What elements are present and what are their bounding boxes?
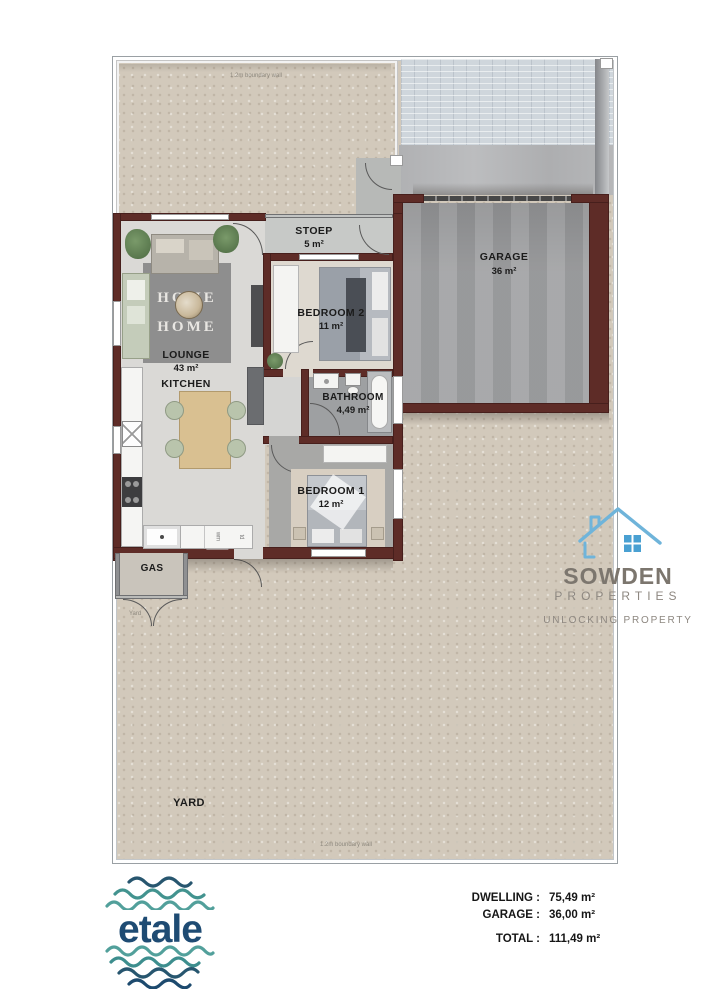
- kitchen-stove: [122, 477, 142, 507]
- garage-area: 36 m²: [492, 266, 517, 278]
- garage-wall-top-left: [393, 194, 424, 203]
- gas-label: GAS: [141, 563, 164, 576]
- etale-logo: etale: [96, 874, 224, 994]
- rug-text-line2: HOME: [157, 320, 217, 335]
- tumble-dryer: td: [230, 526, 252, 548]
- house-bottom-shadow: [188, 559, 393, 573]
- gas-wall-left: [115, 553, 120, 599]
- bedroom1-wardrobe: [323, 445, 387, 463]
- bathroom-area: 4,49 m²: [337, 405, 370, 417]
- yard-label: YARD: [173, 797, 205, 811]
- oven-unit: [144, 526, 181, 548]
- gas-door-arc-right: [153, 599, 182, 626]
- bedroom2-label: BEDROOM 2: [297, 307, 364, 320]
- sowden-subtitle: PROPERTIES: [538, 589, 698, 603]
- bathroom-window-right: [393, 376, 403, 424]
- stoep-wall-top: [265, 214, 393, 218]
- sowden-name: SOWDEN: [538, 564, 698, 588]
- total-value: 111,49 m²: [549, 933, 600, 945]
- sofa-left: [122, 273, 150, 359]
- stoep-label: STOEP: [295, 225, 332, 238]
- kitchen-sink: [122, 421, 142, 447]
- dwelling-label: DWELLING :: [415, 892, 540, 904]
- dining-chair-4: [227, 439, 246, 458]
- garage-wall-top-right: [571, 194, 609, 203]
- kitchen-counter-bottom: wm td: [143, 525, 253, 549]
- house-wall-left: [113, 213, 121, 561]
- garage-total-label: GARAGE :: [415, 909, 540, 921]
- boundary-wall-label-bottom: 1.2m boundary wall: [320, 842, 372, 850]
- bathroom-label: BATHROOM: [322, 392, 383, 405]
- bedroom2-window-top: [299, 254, 359, 260]
- boundary-wall-label-top: 1.2m boundary wall: [230, 73, 282, 81]
- right-boundary-wall: [595, 59, 609, 195]
- bedroom2-area: 11 m²: [319, 321, 343, 333]
- tv-unit: [251, 285, 263, 347]
- total-label: TOTAL :: [415, 933, 540, 945]
- garage-label: GARAGE: [480, 251, 529, 264]
- bathroom-toilet: [345, 373, 361, 386]
- summary-row-total: TOTAL : 111,49 m²: [415, 933, 615, 945]
- etale-waves-top-icon: [96, 874, 224, 910]
- kitchen-tall-unit: [247, 367, 264, 425]
- floor-plan-page: 1.2m boundary wall GARAGE 36 m²: [0, 0, 706, 1000]
- summary-row-dwelling: DWELLING : 75,49 m²: [415, 892, 615, 904]
- sowden-tagline: UNLOCKING PROPERTY: [538, 615, 698, 626]
- stoep-area: 5 m²: [304, 239, 324, 251]
- dining-table: [179, 391, 231, 469]
- dwelling-value: 75,49 m²: [549, 892, 595, 904]
- kitchen-label: KITCHEN: [161, 378, 210, 391]
- coffee-table: [175, 291, 203, 319]
- bedroom1-side-table-left: [293, 527, 306, 540]
- lounge-window-top: [151, 214, 229, 220]
- washing-machine: wm: [207, 525, 229, 550]
- floor-plan: 1.2m boundary wall GARAGE 36 m²: [112, 56, 618, 864]
- dining-chair-3: [227, 401, 246, 420]
- bathroom-basin: [313, 373, 339, 389]
- lounge-area: 43 m²: [174, 363, 199, 375]
- garage-roller-door: [424, 196, 571, 201]
- bedroom2-wardrobe: [273, 265, 299, 353]
- summary-row-garage: GARAGE : 36,00 m²: [415, 909, 615, 921]
- garage-door-shadow: [413, 183, 593, 195]
- front-yard-fence: [117, 61, 397, 218]
- yard-small-label: Yard: [129, 611, 141, 617]
- kitchen-window-left: [113, 426, 121, 454]
- bedroom1-area: 12 m²: [319, 499, 344, 511]
- bedroom1-label: BEDROOM 1: [297, 485, 364, 498]
- bedroom1-window-right: [393, 469, 403, 519]
- plant-lounge-left: [125, 229, 151, 259]
- driveway-paving: [401, 59, 613, 147]
- sowden-house-icon: [558, 495, 678, 559]
- garage-floor: [403, 203, 601, 403]
- gas-floor: [119, 553, 185, 599]
- front-yard-wall-shadow: [119, 64, 391, 72]
- etale-wordmark: etale: [96, 913, 224, 947]
- garage-bottom-shadow: [403, 413, 609, 425]
- etale-waves-bottom-icon: [96, 945, 224, 989]
- dining-chair-1: [165, 401, 184, 420]
- garage-wall-bottom: [393, 403, 609, 413]
- garage-wall-right: [589, 194, 609, 413]
- sofa-top: [151, 234, 219, 274]
- bedroom1-door-gap: [269, 436, 299, 444]
- gate-post-right: [600, 58, 613, 69]
- area-summary: DWELLING : 75,49 m² GARAGE : 36,00 m² TO…: [415, 892, 615, 950]
- sowden-logo: SOWDEN PROPERTIES UNLOCKING PROPERTY: [538, 495, 698, 626]
- bathroom-wall-left: [301, 369, 309, 441]
- garage-total-value: 36,00 m²: [549, 909, 595, 921]
- lounge-window-left: [113, 301, 121, 346]
- bedroom1-window-bottom: [311, 549, 366, 557]
- plant-lounge-right: [213, 225, 239, 253]
- bedroom1-side-table-right: [371, 527, 384, 540]
- lounge-label: LOUNGE: [162, 349, 209, 362]
- dining-chair-2: [165, 439, 184, 458]
- plant-bedroom2: [267, 353, 283, 369]
- kitchen-counter-left: [121, 367, 143, 547]
